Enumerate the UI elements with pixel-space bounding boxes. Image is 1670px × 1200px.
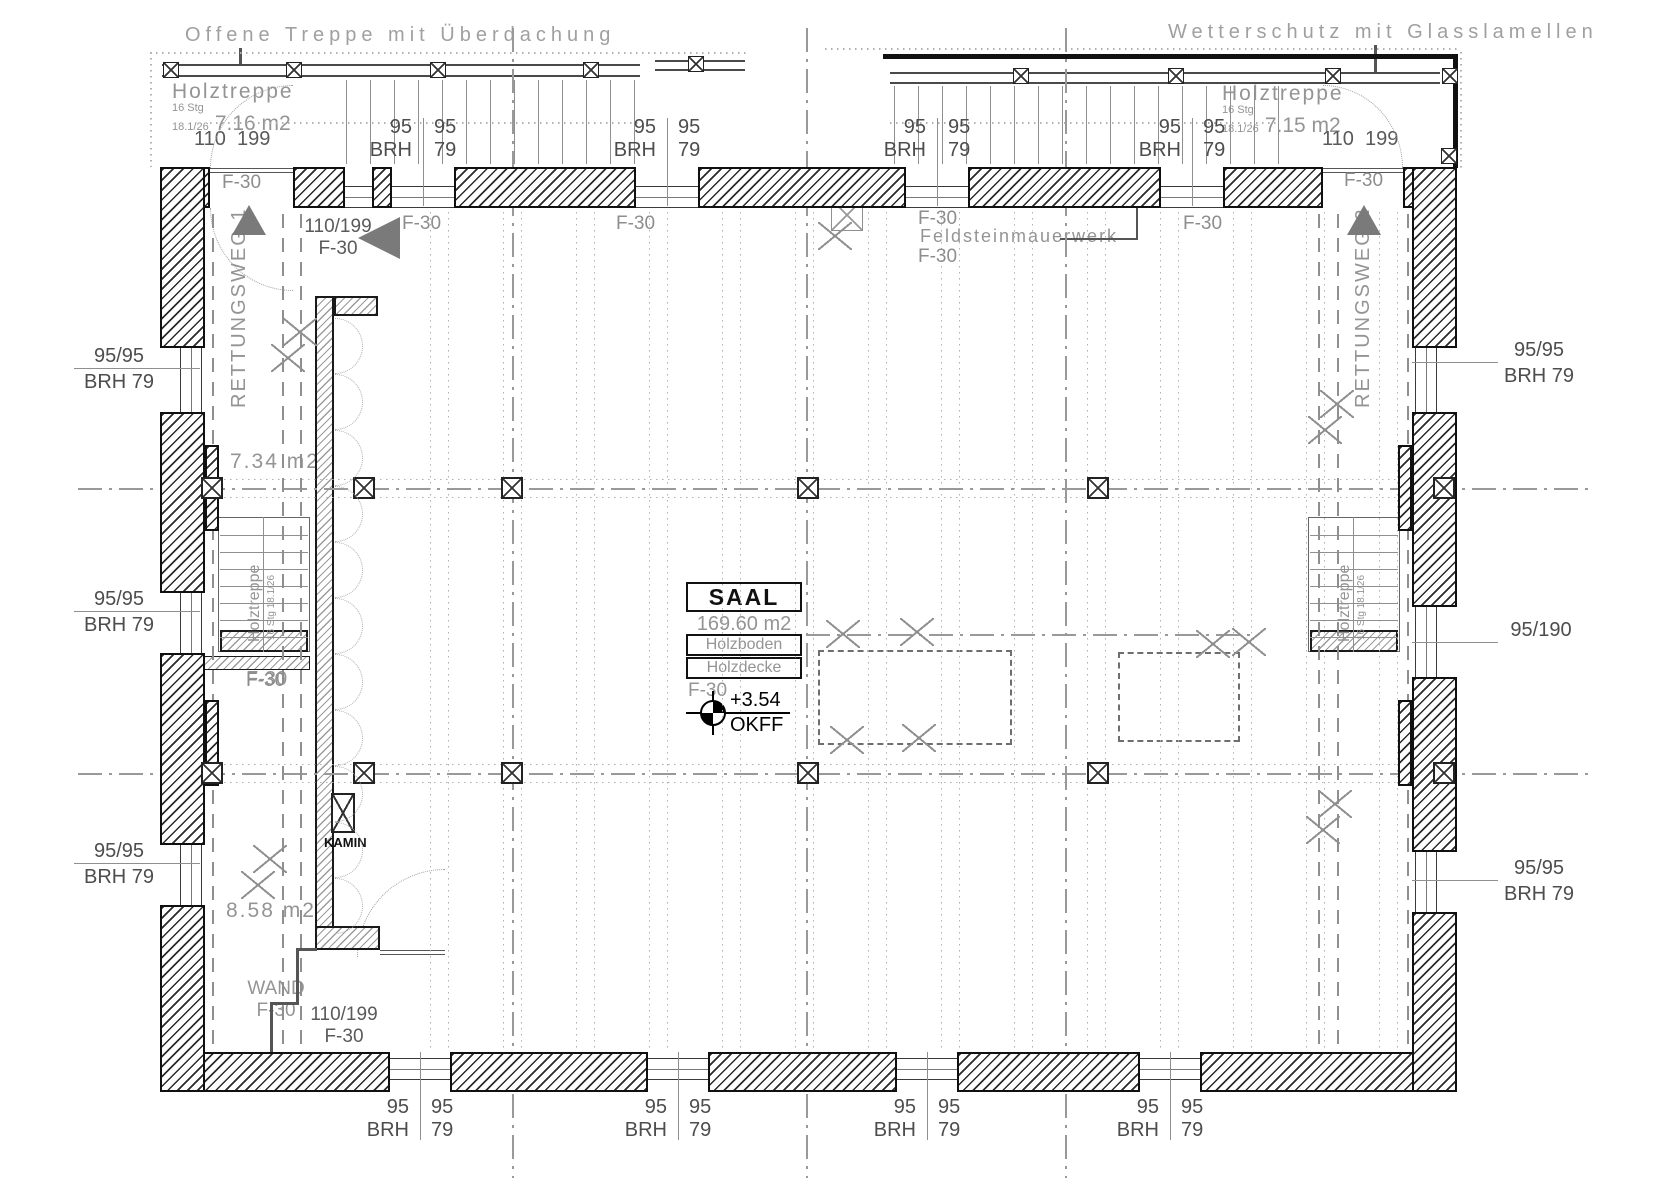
fire-rating-label: F-30 — [222, 172, 282, 194]
escape-arrow-up-icon — [1347, 205, 1381, 235]
stair-tread — [346, 80, 347, 164]
x-mark-icon — [271, 344, 305, 372]
fire-rating-label: F-30 — [1344, 170, 1404, 192]
leader-line — [1136, 206, 1138, 240]
stair-tread — [1278, 86, 1279, 164]
stair-tread — [1110, 86, 1111, 164]
sill-height: 79 — [678, 1119, 733, 1142]
sill-height: 79 — [423, 139, 478, 162]
grid-line — [1306, 212, 1307, 1050]
floor-plan: Offene Treppe mit Überdachung Wetterschu… — [0, 0, 1670, 1200]
panel-arc — [335, 822, 363, 878]
area-lower-label: 8.58 m2 — [226, 899, 316, 923]
escape-route-line — [1318, 214, 1320, 1052]
x-mark-icon — [1306, 816, 1340, 844]
side-window-label: 95/95 — [76, 840, 162, 860]
canopy-post-icon — [688, 56, 704, 72]
window — [1415, 852, 1437, 912]
stair-tread — [1062, 86, 1063, 164]
window — [345, 186, 372, 208]
leader-line — [1412, 642, 1498, 643]
wall-segment — [698, 167, 906, 208]
wall-pilaster — [1398, 445, 1412, 531]
canopy-right-rail — [890, 72, 1440, 84]
grid-line — [795, 212, 796, 1050]
stair-tread — [1086, 86, 1087, 164]
grid-line — [1160, 212, 1161, 1050]
column-icon — [201, 762, 223, 784]
partition-step — [270, 1002, 299, 1005]
fire-rating-label: F-30 — [918, 208, 978, 230]
window-width: 95 — [872, 1096, 927, 1119]
brh-label: BRH — [1115, 1119, 1170, 1142]
window-width: 95 — [623, 1096, 678, 1119]
canopy-post-icon — [583, 62, 599, 78]
room-area: 169.60 m2 — [686, 613, 802, 636]
column-icon — [501, 762, 523, 784]
door-label-top-left: 110/199 F-30 — [296, 216, 380, 260]
wall-segment — [160, 412, 205, 593]
window — [1415, 348, 1437, 412]
door-size-label: 110/199 — [302, 1004, 386, 1026]
leader-line — [74, 611, 200, 612]
wall-segment — [454, 167, 636, 208]
grid-line — [1324, 212, 1325, 1050]
stair-tread — [1134, 86, 1135, 164]
grid-line — [576, 212, 577, 1050]
stair-tread — [490, 80, 491, 164]
window — [180, 348, 202, 412]
room-name-box: SAAL — [686, 582, 802, 612]
panel-arc — [335, 374, 363, 430]
wall-segment — [160, 905, 205, 1092]
column-icon — [797, 477, 819, 499]
stair-tread — [1014, 86, 1015, 164]
door-opening — [380, 950, 445, 955]
wall-segment — [968, 167, 1161, 208]
column-icon — [797, 762, 819, 784]
partition-wall-flange — [334, 296, 378, 316]
stair-tread — [514, 80, 515, 164]
brh-label: BRH — [882, 139, 937, 162]
wall-segment — [1412, 167, 1457, 348]
column-icon — [1433, 477, 1455, 499]
canopy-right-outline — [825, 48, 1458, 50]
window-width: 95 — [612, 116, 667, 139]
x-mark-icon — [1308, 416, 1342, 444]
window-height: 95 — [420, 1096, 475, 1119]
side-window-label: BRH 79 — [1496, 365, 1582, 385]
wall-segment — [1412, 412, 1457, 607]
side-window-label: 95/190 — [1498, 619, 1584, 639]
column-icon — [501, 477, 523, 499]
x-mark-icon — [830, 726, 864, 754]
window-height: 95 — [1170, 1096, 1225, 1119]
sill-height: 79 — [927, 1119, 982, 1142]
sill-height: 79 — [667, 139, 722, 162]
fire-rating-label: F-30 — [402, 213, 462, 235]
grid-line — [649, 212, 650, 1050]
grid-line — [813, 212, 814, 1050]
brh-label: BRH — [612, 139, 667, 162]
stair-tread — [562, 80, 563, 164]
canopy-right-outline — [1460, 52, 1462, 168]
side-window-label: BRH 79 — [1496, 883, 1582, 903]
side-window-label: 95/95 — [76, 345, 162, 365]
axis-line — [806, 634, 1256, 636]
grid-line — [503, 212, 504, 1050]
window-width: 95 — [882, 116, 937, 139]
title-left: Offene Treppe mit Überdachung — [185, 24, 615, 47]
escape-route-2-label: RETTUNGSWEG 2 — [1352, 233, 1375, 408]
room-floor-box: Holzboden — [686, 634, 802, 656]
level-value: +3.54 — [730, 689, 781, 712]
x-mark-icon — [1318, 790, 1352, 818]
stair-tread — [586, 80, 587, 164]
partition-step — [296, 948, 299, 1005]
canopy-post-icon — [1013, 68, 1029, 84]
stair-tread — [610, 80, 611, 164]
escape-route-line — [212, 214, 214, 1052]
leader-line — [74, 368, 200, 369]
room-name: SAAL — [709, 584, 780, 610]
grid-line — [1379, 212, 1380, 1050]
escape-arrow-up-icon — [232, 205, 266, 235]
grid-line — [941, 212, 942, 1050]
fire-rating-label: F-30 — [246, 670, 306, 692]
side-window-label: 95/95 — [1496, 857, 1582, 877]
panel-arc — [335, 654, 363, 710]
axis-line — [78, 773, 1593, 775]
grid-line — [430, 212, 431, 1050]
canopy-post-icon — [1441, 148, 1457, 164]
sill-height: 79 — [1170, 1119, 1225, 1142]
brh-label: BRH — [872, 1119, 927, 1142]
canopy-post-icon — [1168, 68, 1184, 84]
grid-line — [448, 212, 449, 1050]
fire-rating-label: F-30 — [616, 213, 676, 235]
door-size-label: 110/199 — [296, 216, 380, 238]
wall-pilaster — [1398, 700, 1412, 786]
wall-segment — [160, 653, 205, 845]
stair-left-sub: 16 Stg 18.1/26 — [266, 540, 277, 640]
grid-line — [521, 212, 522, 1050]
panel-arc — [335, 710, 363, 766]
grid-line — [1014, 212, 1015, 1050]
canopy-left-outline — [150, 52, 746, 54]
stair-stringer — [263, 517, 264, 652]
partition-step — [270, 1002, 273, 1054]
grid-line — [667, 212, 668, 1050]
panel-arc — [335, 598, 363, 654]
wall-segment — [160, 167, 205, 348]
window-height: 95 — [423, 116, 478, 139]
grid-line — [1397, 212, 1398, 1050]
partition-wall — [315, 296, 334, 928]
escape-route-line — [1337, 214, 1339, 1052]
wall-segment — [450, 1052, 648, 1092]
sill-height: 79 — [1192, 139, 1247, 162]
canopy-post-icon — [1442, 68, 1458, 84]
title-right: Wetterschutz mit Glasslamellen — [1168, 21, 1598, 44]
window-height: 95 — [927, 1096, 982, 1119]
stair-tread — [1254, 86, 1255, 164]
column-icon — [201, 477, 223, 499]
grid-line — [722, 212, 723, 1050]
sill-height: 79 — [420, 1119, 475, 1142]
x-mark-icon — [826, 620, 860, 648]
window-height: 95 — [678, 1096, 733, 1119]
leader-line — [1412, 362, 1498, 363]
window-height: 95 — [937, 116, 992, 139]
level-ref: OKFF — [730, 714, 783, 737]
wetterschutz-wall — [883, 54, 1458, 59]
grid-line — [740, 212, 741, 1050]
grid-line — [959, 212, 960, 1050]
wall-segment — [1223, 167, 1323, 208]
wall-segment — [1412, 912, 1457, 1092]
escape-route-1-label: RETTUNGSWEG 1 — [228, 233, 251, 408]
side-window-label: BRH 79 — [76, 614, 162, 634]
column-icon — [1087, 762, 1109, 784]
grid-line — [1087, 212, 1088, 1050]
x-mark-icon — [1196, 630, 1230, 658]
x-mark-icon — [241, 871, 275, 899]
leader-line — [74, 863, 200, 864]
stair-stringer — [1353, 517, 1354, 652]
panel-arc — [335, 318, 363, 374]
window-height: 95 — [667, 116, 722, 139]
brh-label: BRH — [1137, 139, 1192, 162]
window-width: 95 — [1137, 116, 1192, 139]
grid-line — [1178, 212, 1179, 1050]
grid-line — [886, 212, 887, 1050]
window-width: 95 — [368, 116, 423, 139]
leader-line — [678, 1052, 679, 1140]
canopy-post-icon — [163, 62, 179, 78]
wall-segment — [708, 1052, 897, 1092]
window-height: 95 — [1192, 116, 1247, 139]
stair-tread — [538, 80, 539, 164]
x-mark-icon — [1320, 390, 1354, 418]
canopy-left-rail — [162, 64, 640, 77]
canopy-post-icon — [286, 62, 302, 78]
grid-line — [1105, 212, 1106, 1050]
panel-arc — [335, 542, 363, 598]
room-floor: Holzboden — [706, 636, 783, 653]
x-mark-icon — [283, 318, 317, 346]
side-window-label: BRH 79 — [76, 866, 162, 886]
grid-line — [1032, 212, 1033, 1050]
canopy-post-icon — [1325, 68, 1341, 84]
leader-line — [423, 118, 424, 206]
x-mark-icon — [902, 724, 936, 752]
leader-line — [667, 118, 668, 206]
x-mark-icon — [900, 618, 934, 646]
grid-line — [868, 212, 869, 1050]
wall-segment — [372, 167, 392, 208]
door-swing-arc — [1323, 85, 1403, 168]
stair-right-sub: 16 Stg 18.1/26 — [1356, 540, 1367, 640]
room-ceiling-box: Holzdecke — [686, 657, 802, 679]
wall-segment — [957, 1052, 1140, 1092]
leader-line — [1170, 1052, 1171, 1140]
fire-rating-label: F-30 — [302, 1026, 386, 1048]
grid-line — [594, 212, 595, 1050]
escape-route-line — [1407, 214, 1409, 1052]
window — [180, 593, 202, 653]
leader-line — [927, 1052, 928, 1140]
canopy-post-icon — [430, 62, 446, 78]
stair-tread — [1038, 86, 1039, 164]
fire-rating-label: F-30 — [296, 238, 380, 260]
column-icon — [1087, 477, 1109, 499]
leader-line — [1192, 118, 1193, 206]
side-window-label: 95/95 — [76, 588, 162, 608]
stair-left-name: Holztreppe — [246, 522, 264, 642]
area-upper-label: 7.34 m2 — [230, 450, 320, 474]
brh-label: BRH — [365, 1119, 420, 1142]
side-window-label: BRH 79 — [76, 371, 162, 391]
window — [180, 845, 202, 905]
door-label-bottom-left: 110/199 F-30 — [302, 1004, 386, 1048]
wall-segment — [293, 167, 345, 208]
room-ceiling: Holzdecke — [707, 659, 782, 676]
brh-label: BRH — [368, 139, 423, 162]
x-mark-icon — [253, 845, 287, 873]
fire-rating-label: F-30 — [1183, 213, 1243, 235]
x-mark-icon — [1232, 628, 1266, 656]
brh-label: BRH — [623, 1119, 678, 1142]
leader-line — [420, 1052, 421, 1140]
window-width: 95 — [365, 1096, 420, 1119]
leader-line — [937, 118, 938, 206]
axis-line — [78, 488, 1593, 490]
column-icon — [1433, 762, 1455, 784]
window-width: 95 — [1115, 1096, 1170, 1119]
side-window-label: 95/95 — [1496, 339, 1582, 359]
leader-line — [1060, 238, 1138, 240]
canopy-left-outline — [150, 52, 152, 167]
fire-rating-label: F-30 — [918, 246, 978, 268]
x-mark-icon — [818, 222, 852, 250]
sill-height: 79 — [937, 139, 992, 162]
leader-line — [1412, 880, 1498, 881]
